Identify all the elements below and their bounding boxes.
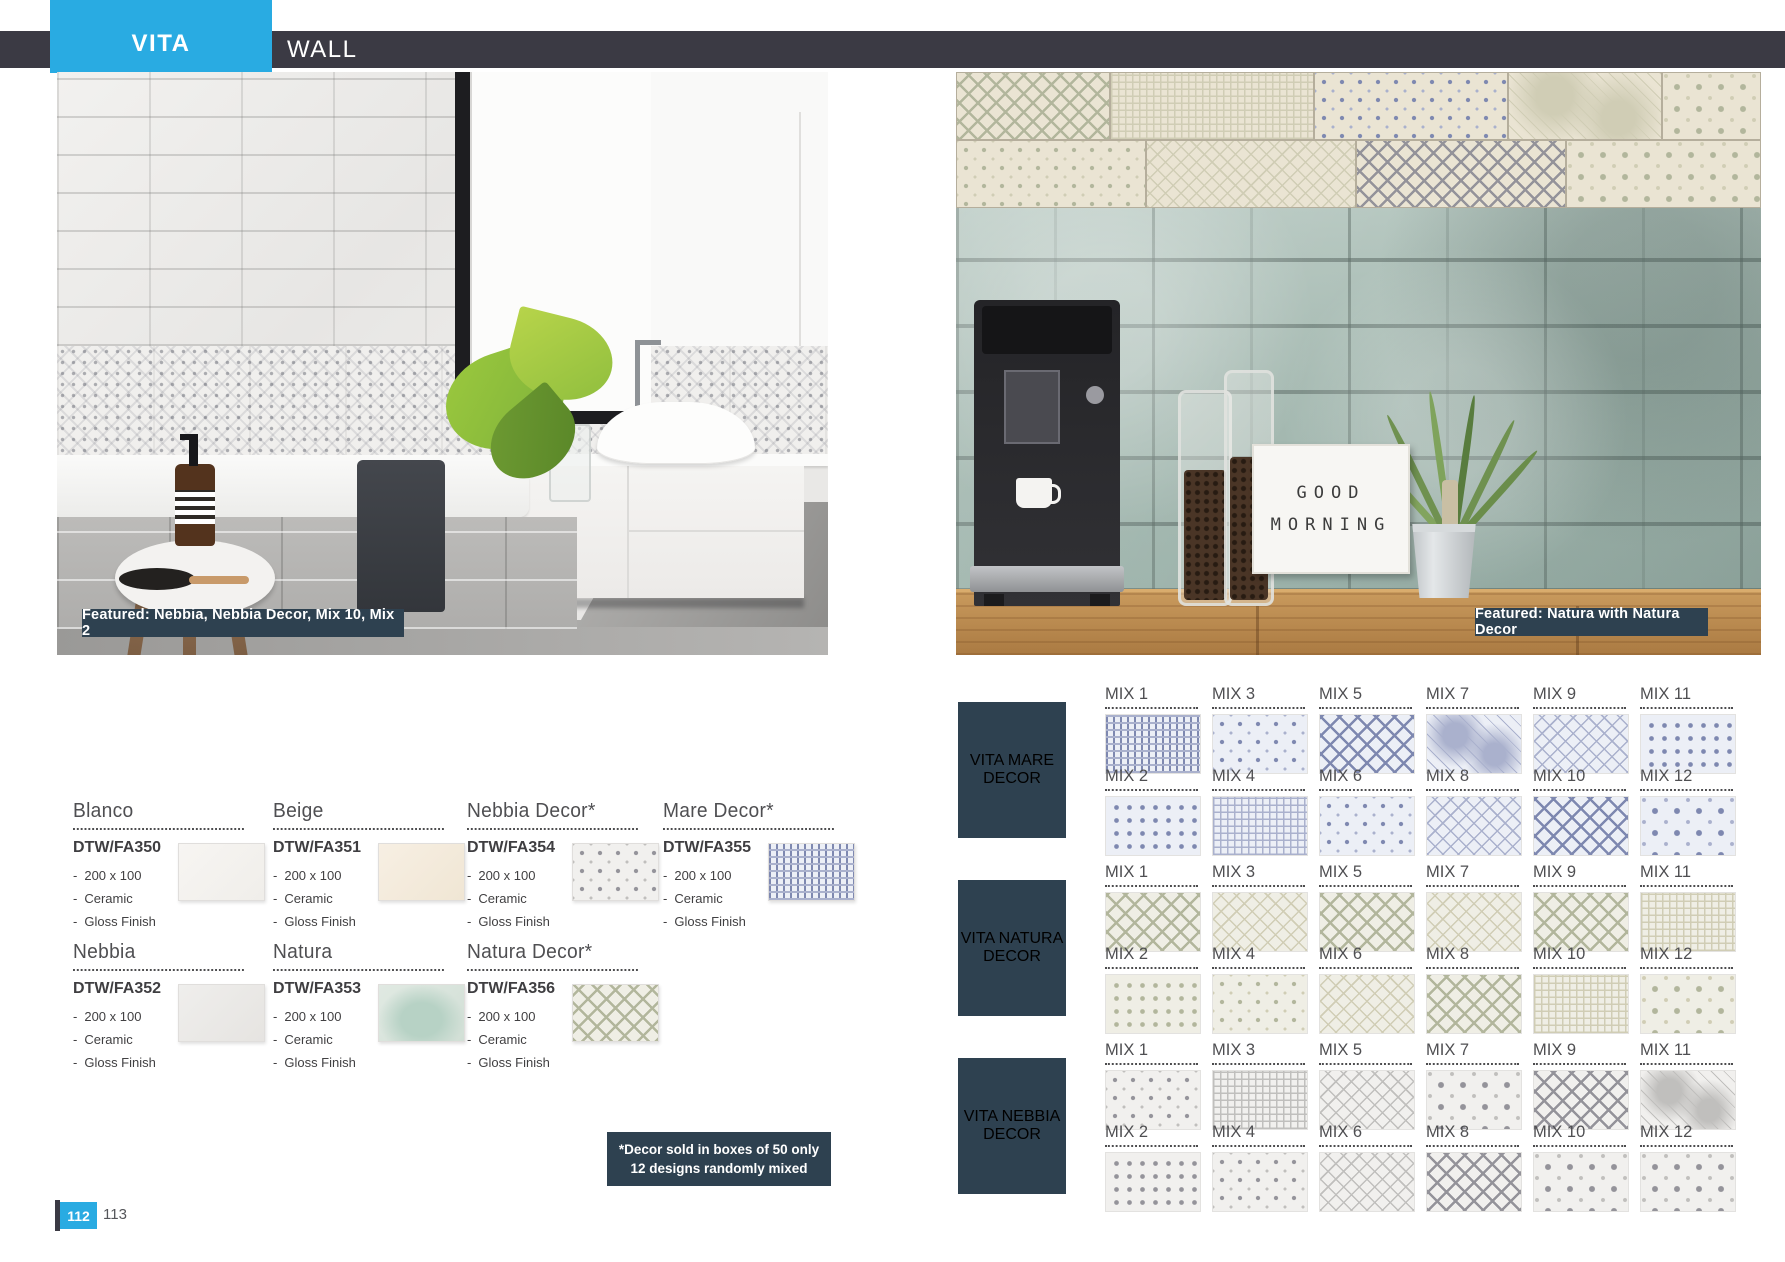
drip-tray bbox=[970, 566, 1124, 592]
lightbox-line2: MORNING bbox=[1271, 515, 1392, 535]
product-spec: -Gloss Finish bbox=[467, 1051, 563, 1074]
spec-bullet: - bbox=[273, 1005, 277, 1028]
product-swatch-mare-decor bbox=[768, 843, 855, 901]
spec-bullet: - bbox=[467, 1028, 471, 1051]
mix-cell-mare-mix-7: MIX 7 bbox=[1426, 684, 1522, 774]
mix-cell-mare-mix-3: MIX 3 bbox=[1212, 684, 1308, 774]
spec-value: 200 x 100 bbox=[284, 864, 341, 887]
product-swatch-nebbia-decor bbox=[572, 843, 659, 901]
decor-section-natura: VITA NATURADECORMIX 1MIX 3MIX 5MIX 7MIX … bbox=[956, 856, 1756, 1034]
product-name: Natura bbox=[273, 941, 444, 971]
decor-mix-grid: VITA MAREDECORMIX 1MIX 3MIX 5MIX 7MIX 9M… bbox=[956, 678, 1756, 1218]
mix-cell-natura-mix-10: MIX 10 bbox=[1533, 944, 1629, 1034]
mix-swatch bbox=[1426, 1152, 1522, 1212]
product-code: DTW/FA354 bbox=[467, 839, 563, 857]
product-swatch-natura-decor bbox=[572, 984, 659, 1042]
mix-swatch bbox=[1105, 1070, 1201, 1130]
mix-cell-mare-mix-5: MIX 5 bbox=[1319, 684, 1415, 774]
mix-label: MIX 1 bbox=[1105, 862, 1198, 887]
spec-value: Gloss Finish bbox=[478, 910, 550, 933]
mix-label: MIX 6 bbox=[1319, 944, 1412, 969]
spec-value: 200 x 100 bbox=[284, 1005, 341, 1028]
spec-value: 200 x 100 bbox=[84, 1005, 141, 1028]
product-spec: -200 x 100 bbox=[273, 1005, 369, 1028]
mix-label: MIX 4 bbox=[1212, 766, 1305, 791]
patterned-tile bbox=[1357, 141, 1565, 207]
mix-swatch bbox=[1533, 714, 1629, 774]
mix-swatch bbox=[1640, 796, 1736, 856]
mix-cell-nebbia-mix-6: MIX 6 bbox=[1319, 1122, 1415, 1212]
patterned-tile bbox=[1111, 73, 1313, 139]
spec-bullet: - bbox=[73, 910, 77, 933]
product-spec: -200 x 100 bbox=[467, 864, 563, 887]
plant-bucket bbox=[1408, 524, 1480, 598]
spec-bullet: - bbox=[73, 864, 77, 887]
soap-bottle bbox=[175, 464, 215, 546]
patterned-tile bbox=[957, 141, 1145, 207]
spec-bullet: - bbox=[73, 1005, 77, 1028]
mix-cell-natura-mix-1: MIX 1 bbox=[1105, 862, 1201, 952]
spec-bullet: - bbox=[73, 1028, 77, 1051]
mix-cell-mare-mix-8: MIX 8 bbox=[1426, 766, 1522, 856]
mix-cell-nebbia-mix-9: MIX 9 bbox=[1533, 1040, 1629, 1130]
mix-swatch bbox=[1640, 714, 1736, 774]
product-spec: -Gloss Finish bbox=[273, 1051, 369, 1074]
mix-label: MIX 12 bbox=[1640, 1122, 1733, 1147]
door-edge bbox=[799, 112, 801, 380]
product-spec: -Gloss Finish bbox=[73, 910, 169, 933]
page-number-next: 113 bbox=[103, 1206, 127, 1223]
mix-swatch bbox=[1640, 1070, 1736, 1130]
mix-cell-natura-mix-4: MIX 4 bbox=[1212, 944, 1308, 1034]
mix-swatch bbox=[1319, 892, 1415, 952]
product-details: DTW/FA351-200 x 100-Ceramic-Gloss Finish bbox=[273, 839, 369, 933]
mix-cell-natura-mix-12: MIX 12 bbox=[1640, 944, 1736, 1034]
decor-section-label-natura: VITA NATURADECOR bbox=[958, 880, 1066, 1016]
lightbox-sign: GOOD MORNING bbox=[1252, 444, 1410, 574]
patterned-tile bbox=[1147, 141, 1355, 207]
mix-cell-nebbia-mix-4: MIX 4 bbox=[1212, 1122, 1308, 1212]
mix-swatch bbox=[1533, 974, 1629, 1034]
note-line2: 12 designs randomly mixed bbox=[630, 1161, 807, 1176]
brand-tab: VITA bbox=[50, 0, 272, 73]
mix-swatch bbox=[1533, 1152, 1629, 1212]
mix-cell-nebbia-mix-8: MIX 8 bbox=[1426, 1122, 1522, 1212]
product-name: Mare Decor* bbox=[663, 800, 834, 830]
patterned-tile bbox=[1315, 73, 1507, 139]
brand-name: VITA bbox=[132, 30, 191, 58]
mix-cell-natura-mix-5: MIX 5 bbox=[1319, 862, 1415, 952]
mix-swatch bbox=[1212, 796, 1308, 856]
spec-bullet: - bbox=[273, 1028, 277, 1051]
mix-label: MIX 4 bbox=[1212, 944, 1305, 969]
product-spec: -Ceramic bbox=[273, 887, 369, 910]
mix-swatch bbox=[1319, 974, 1415, 1034]
spec-bullet: - bbox=[467, 864, 471, 887]
coffee-beans bbox=[1184, 470, 1226, 600]
brush bbox=[119, 568, 195, 590]
spec-value: Ceramic bbox=[478, 1028, 526, 1051]
mix-label: MIX 7 bbox=[1426, 1040, 1519, 1065]
mix-label: MIX 2 bbox=[1105, 766, 1198, 791]
mix-cell-mare-mix-1: MIX 1 bbox=[1105, 684, 1201, 774]
mix-label: MIX 5 bbox=[1319, 1040, 1412, 1065]
product-spec: -200 x 100 bbox=[73, 864, 169, 887]
decor-label-line1: VITA MARE bbox=[970, 752, 1054, 770]
mix-cell-nebbia-mix-5: MIX 5 bbox=[1319, 1040, 1415, 1130]
product-code: DTW/FA351 bbox=[273, 839, 369, 857]
product-card-nebbia-decor: Nebbia Decor*DTW/FA354-200 x 100-Ceramic… bbox=[467, 800, 659, 933]
decor-section-label-nebbia: VITA NEBBIADECOR bbox=[958, 1058, 1066, 1194]
mix-label: MIX 11 bbox=[1640, 862, 1733, 887]
product-body: DTW/FA356-200 x 100-Ceramic-Gloss Finish bbox=[467, 980, 659, 1074]
mix-swatch bbox=[1640, 974, 1736, 1034]
mix-label: MIX 9 bbox=[1533, 862, 1626, 887]
spec-bullet: - bbox=[273, 864, 277, 887]
spec-value: Gloss Finish bbox=[84, 1051, 156, 1074]
note-line1: *Decor sold in boxes of 50 only bbox=[619, 1142, 819, 1157]
mix-cell-natura-mix-3: MIX 3 bbox=[1212, 862, 1308, 952]
mix-label: MIX 12 bbox=[1640, 766, 1733, 791]
spec-bullet: - bbox=[663, 910, 667, 933]
spec-bullet: - bbox=[73, 887, 77, 910]
mix-cell-nebbia-mix-12: MIX 12 bbox=[1640, 1122, 1736, 1212]
mix-label: MIX 3 bbox=[1212, 1040, 1305, 1065]
mix-cell-nebbia-mix-1: MIX 1 bbox=[1105, 1040, 1201, 1130]
decor-note: *Decor sold in boxes of 50 only 12 desig… bbox=[607, 1132, 831, 1186]
mix-swatch bbox=[1105, 974, 1201, 1034]
product-details: DTW/FA353-200 x 100-Ceramic-Gloss Finish bbox=[273, 980, 369, 1074]
product-card-nebbia: NebbiaDTW/FA352-200 x 100-Ceramic-Gloss … bbox=[73, 941, 265, 1074]
decor-section-nebbia: VITA NEBBIADECORMIX 1MIX 3MIX 5MIX 7MIX … bbox=[956, 1034, 1756, 1212]
product-details: DTW/FA354-200 x 100-Ceramic-Gloss Finish bbox=[467, 839, 563, 933]
spec-bullet: - bbox=[663, 864, 667, 887]
mix-swatch bbox=[1426, 892, 1522, 952]
mix-cell-natura-mix-6: MIX 6 bbox=[1319, 944, 1415, 1034]
product-details: DTW/FA355-200 x 100-Ceramic-Gloss Finish bbox=[663, 839, 759, 933]
product-code: DTW/FA356 bbox=[467, 980, 563, 998]
product-spec: -Ceramic bbox=[467, 1028, 563, 1051]
mix-swatch bbox=[1533, 892, 1629, 952]
mix-swatch bbox=[1105, 892, 1201, 952]
mix-label: MIX 12 bbox=[1640, 944, 1733, 969]
product-swatch-nebbia bbox=[178, 984, 265, 1042]
mix-swatch bbox=[1105, 1152, 1201, 1212]
product-name: Beige bbox=[273, 800, 444, 830]
spec-value: Ceramic bbox=[284, 1028, 332, 1051]
spec-value: Gloss Finish bbox=[84, 910, 156, 933]
spec-bullet: - bbox=[467, 910, 471, 933]
machine-dial bbox=[1086, 386, 1104, 404]
catalog-spread: VITA WALL Featured: Nebbia, Nebbia Decor… bbox=[0, 0, 1785, 1262]
mix-label: MIX 5 bbox=[1319, 684, 1412, 709]
mix-cell-natura-mix-9: MIX 9 bbox=[1533, 862, 1629, 952]
spec-bullet: - bbox=[273, 1051, 277, 1074]
towel bbox=[357, 460, 445, 612]
product-spec: -200 x 100 bbox=[663, 864, 759, 887]
spec-value: Ceramic bbox=[84, 1028, 132, 1051]
decor-label-line1: VITA NEBBIA bbox=[964, 1108, 1061, 1126]
spec-value: Gloss Finish bbox=[284, 1051, 356, 1074]
coffee-corner-photo: GOOD MORNING Featured: Natura with Natur… bbox=[956, 72, 1761, 655]
mix-label: MIX 11 bbox=[1640, 1040, 1733, 1065]
product-details: DTW/FA352-200 x 100-Ceramic-Gloss Finish bbox=[73, 980, 169, 1074]
mix-cell-natura-mix-7: MIX 7 bbox=[1426, 862, 1522, 952]
product-name: Blanco bbox=[73, 800, 244, 830]
product-body: DTW/FA350-200 x 100-Ceramic-Gloss Finish bbox=[73, 839, 265, 933]
product-body: DTW/FA355-200 x 100-Ceramic-Gloss Finish bbox=[663, 839, 855, 933]
mix-cell-mare-mix-6: MIX 6 bbox=[1319, 766, 1415, 856]
mix-label: MIX 11 bbox=[1640, 684, 1733, 709]
product-spec: -Ceramic bbox=[73, 887, 169, 910]
mix-label: MIX 9 bbox=[1533, 1040, 1626, 1065]
product-details: DTW/FA356-200 x 100-Ceramic-Gloss Finish bbox=[467, 980, 563, 1074]
mix-label: MIX 3 bbox=[1212, 862, 1305, 887]
product-spec: -200 x 100 bbox=[467, 1005, 563, 1028]
mix-label: MIX 6 bbox=[1319, 766, 1412, 791]
spec-value: Ceramic bbox=[84, 887, 132, 910]
spec-bullet: - bbox=[467, 887, 471, 910]
bean-hopper bbox=[982, 306, 1112, 354]
product-card-natura: NaturaDTW/FA353-200 x 100-Ceramic-Gloss … bbox=[273, 941, 465, 1074]
product-spec: -Gloss Finish bbox=[273, 910, 369, 933]
mix-cell-nebbia-mix-10: MIX 10 bbox=[1533, 1122, 1629, 1212]
mix-swatch bbox=[1319, 1070, 1415, 1130]
mix-swatch bbox=[1212, 714, 1308, 774]
mix-label: MIX 8 bbox=[1426, 766, 1519, 791]
machine-foot bbox=[1090, 594, 1110, 606]
product-body: DTW/FA353-200 x 100-Ceramic-Gloss Finish bbox=[273, 980, 465, 1074]
product-spec: -Ceramic bbox=[73, 1028, 169, 1051]
spec-bullet: - bbox=[663, 887, 667, 910]
mix-label: MIX 6 bbox=[1319, 1122, 1412, 1147]
product-card-beige: BeigeDTW/FA351-200 x 100-Ceramic-Gloss F… bbox=[273, 800, 465, 933]
mix-label: MIX 10 bbox=[1533, 1122, 1626, 1147]
product-code: DTW/FA353 bbox=[273, 980, 369, 998]
mix-label: MIX 5 bbox=[1319, 862, 1412, 887]
mix-cell-mare-mix-4: MIX 4 bbox=[1212, 766, 1308, 856]
patterned-tile bbox=[1663, 73, 1760, 139]
mix-swatch bbox=[1212, 1152, 1308, 1212]
bottle-pump bbox=[189, 434, 198, 466]
mix-cell-nebbia-mix-7: MIX 7 bbox=[1426, 1040, 1522, 1130]
mix-label: MIX 2 bbox=[1105, 1122, 1198, 1147]
mix-cell-mare-mix-9: MIX 9 bbox=[1533, 684, 1629, 774]
mix-label: MIX 10 bbox=[1533, 944, 1626, 969]
product-swatch-beige bbox=[378, 843, 465, 901]
mix-swatch bbox=[1426, 1070, 1522, 1130]
mix-label: MIX 1 bbox=[1105, 1040, 1198, 1065]
spec-bullet: - bbox=[73, 1051, 77, 1074]
product-card-mare-decor: Mare Decor*DTW/FA355-200 x 100-Ceramic-G… bbox=[663, 800, 855, 933]
decor-section-label-mare: VITA MAREDECOR bbox=[958, 702, 1066, 838]
coffee-cup bbox=[1016, 478, 1052, 508]
decor-label-line2: DECOR bbox=[983, 948, 1041, 966]
spec-value: Ceramic bbox=[478, 887, 526, 910]
patterned-tile-band bbox=[956, 72, 1761, 208]
mix-swatch bbox=[1640, 892, 1736, 952]
mix-swatch bbox=[1426, 974, 1522, 1034]
spec-value: Gloss Finish bbox=[674, 910, 746, 933]
product-body: DTW/FA354-200 x 100-Ceramic-Gloss Finish bbox=[467, 839, 659, 933]
bathtub-rim bbox=[57, 455, 529, 517]
mix-swatch bbox=[1212, 974, 1308, 1034]
lightbox-line1: GOOD bbox=[1297, 483, 1366, 503]
bottle-label bbox=[175, 490, 215, 524]
mix-swatch bbox=[1533, 1070, 1629, 1130]
decor-label-line1: VITA NATURA bbox=[961, 930, 1064, 948]
mix-cell-nebbia-mix-2: MIX 2 bbox=[1105, 1122, 1201, 1212]
mix-label: MIX 8 bbox=[1426, 944, 1519, 969]
patterned-tile bbox=[957, 73, 1109, 139]
product-spec: -Ceramic bbox=[273, 1028, 369, 1051]
spec-value: Gloss Finish bbox=[284, 910, 356, 933]
product-swatch-natura bbox=[378, 984, 465, 1042]
mix-swatch bbox=[1319, 1152, 1415, 1212]
mix-label: MIX 10 bbox=[1533, 766, 1626, 791]
spec-value: Ceramic bbox=[674, 887, 722, 910]
mix-cell-mare-mix-12: MIX 12 bbox=[1640, 766, 1736, 856]
spec-bullet: - bbox=[467, 1005, 471, 1028]
mix-swatch bbox=[1105, 796, 1201, 856]
mix-swatch bbox=[1426, 796, 1522, 856]
product-body: DTW/FA351-200 x 100-Ceramic-Gloss Finish bbox=[273, 839, 465, 933]
spec-value: 200 x 100 bbox=[84, 864, 141, 887]
mix-swatch bbox=[1319, 714, 1415, 774]
product-spec: -Ceramic bbox=[663, 887, 759, 910]
spec-value: 200 x 100 bbox=[674, 864, 731, 887]
product-body: DTW/FA352-200 x 100-Ceramic-Gloss Finish bbox=[73, 980, 265, 1074]
spec-bullet: - bbox=[273, 887, 277, 910]
mix-label: MIX 9 bbox=[1533, 684, 1626, 709]
left-photo-caption: Featured: Nebbia, Nebbia Decor, Mix 10, … bbox=[82, 609, 404, 637]
spec-value: Ceramic bbox=[284, 887, 332, 910]
product-card-blanco: BlancoDTW/FA350-200 x 100-Ceramic-Gloss … bbox=[73, 800, 265, 933]
product-spec: -Gloss Finish bbox=[467, 910, 563, 933]
decor-label-line2: DECOR bbox=[983, 770, 1041, 788]
product-swatch-blanco bbox=[178, 843, 265, 901]
product-code: DTW/FA350 bbox=[73, 839, 169, 857]
right-photo-caption: Featured: Natura with Natura Decor bbox=[1475, 608, 1708, 636]
spec-value: 200 x 100 bbox=[478, 1005, 535, 1028]
spec-bullet: - bbox=[273, 910, 277, 933]
page-number-current: 112 bbox=[60, 1202, 97, 1229]
mix-swatch bbox=[1426, 714, 1522, 774]
mix-cell-nebbia-mix-11: MIX 11 bbox=[1640, 1040, 1736, 1130]
mix-cell-mare-mix-10: MIX 10 bbox=[1533, 766, 1629, 856]
product-spec: -Gloss Finish bbox=[663, 910, 759, 933]
mix-label: MIX 2 bbox=[1105, 944, 1198, 969]
mix-swatch bbox=[1640, 1152, 1736, 1212]
mix-label: MIX 4 bbox=[1212, 1122, 1305, 1147]
mix-swatch bbox=[1533, 796, 1629, 856]
mix-label: MIX 3 bbox=[1212, 684, 1305, 709]
product-code: DTW/FA352 bbox=[73, 980, 169, 998]
product-code: DTW/FA355 bbox=[663, 839, 759, 857]
mix-label: MIX 7 bbox=[1426, 684, 1519, 709]
mix-cell-mare-mix-11: MIX 11 bbox=[1640, 684, 1736, 774]
patterned-tile bbox=[1567, 141, 1760, 207]
tap bbox=[635, 340, 640, 406]
mix-cell-nebbia-mix-3: MIX 3 bbox=[1212, 1040, 1308, 1130]
mix-label: MIX 8 bbox=[1426, 1122, 1519, 1147]
decor-section-mare: VITA MAREDECORMIX 1MIX 3MIX 5MIX 7MIX 9M… bbox=[956, 678, 1756, 856]
product-card-natura-decor: Natura Decor*DTW/FA356-200 x 100-Ceramic… bbox=[467, 941, 659, 1074]
product-spec: -Ceramic bbox=[467, 887, 563, 910]
product-name: Natura Decor* bbox=[467, 941, 638, 971]
mix-swatch bbox=[1212, 1070, 1308, 1130]
spec-value: Gloss Finish bbox=[478, 1051, 550, 1074]
mix-cell-natura-mix-11: MIX 11 bbox=[1640, 862, 1736, 952]
product-name: Nebbia bbox=[73, 941, 244, 971]
spec-value: 200 x 100 bbox=[478, 864, 535, 887]
mix-swatch bbox=[1212, 892, 1308, 952]
product-details: DTW/FA350-200 x 100-Ceramic-Gloss Finish bbox=[73, 839, 169, 933]
product-list: BlancoDTW/FA350-200 x 100-Ceramic-Gloss … bbox=[73, 800, 863, 1080]
decor-label-line2: DECOR bbox=[983, 1126, 1041, 1144]
mix-swatch bbox=[1319, 796, 1415, 856]
product-spec: -200 x 100 bbox=[273, 864, 369, 887]
mix-label: MIX 7 bbox=[1426, 862, 1519, 887]
category-label: WALL bbox=[287, 36, 357, 64]
spec-bullet: - bbox=[467, 1051, 471, 1074]
mix-cell-mare-mix-2: MIX 2 bbox=[1105, 766, 1201, 856]
mix-swatch bbox=[1105, 714, 1201, 774]
bathroom-photo: Featured: Nebbia, Nebbia Decor, Mix 10, … bbox=[57, 72, 828, 655]
coffee-machine bbox=[974, 300, 1120, 606]
product-name: Nebbia Decor* bbox=[467, 800, 638, 830]
mix-label: MIX 1 bbox=[1105, 684, 1198, 709]
mix-cell-natura-mix-2: MIX 2 bbox=[1105, 944, 1201, 1034]
product-spec: -Gloss Finish bbox=[73, 1051, 169, 1074]
product-spec: -200 x 100 bbox=[73, 1005, 169, 1028]
patterned-tile bbox=[1509, 73, 1661, 139]
mix-cell-natura-mix-8: MIX 8 bbox=[1426, 944, 1522, 1034]
machine-panel bbox=[1004, 370, 1060, 444]
machine-foot bbox=[984, 594, 1004, 606]
